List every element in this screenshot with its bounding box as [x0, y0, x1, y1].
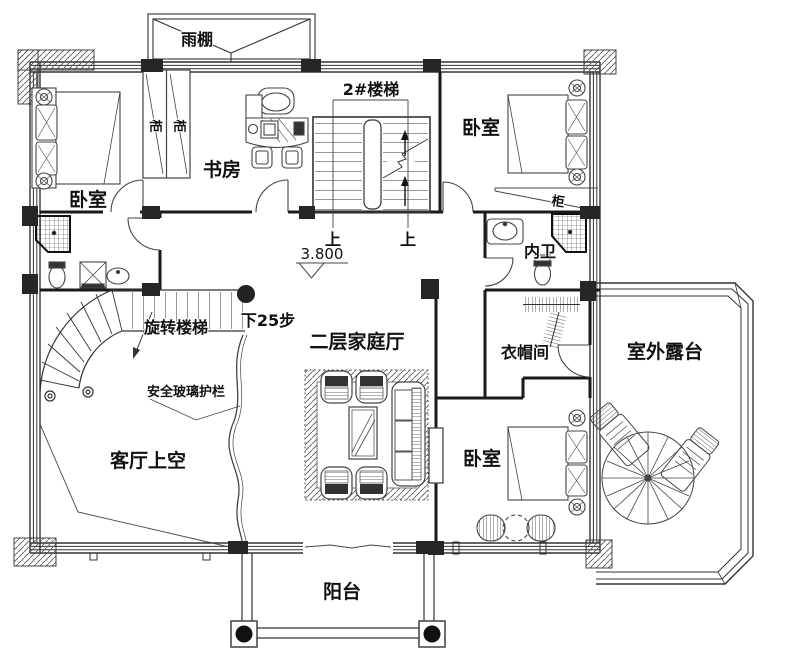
label-wardrobe-cell-2: 柜: [171, 118, 187, 132]
label-balcony: 阳台: [323, 580, 361, 603]
label-cabinet: 柜: [549, 193, 565, 211]
family-hall-sofa-set: [305, 370, 428, 500]
label-spiral-stair: 旋转楼梯: [143, 318, 208, 337]
void-and-glass-rail: [40, 335, 247, 549]
label-inner-bath: 内卫: [524, 242, 556, 261]
stair-2: [313, 100, 430, 228]
label-elevation: 3.800: [301, 245, 344, 263]
elevation-marker: [296, 263, 348, 278]
bedroom-top-right-furniture: [508, 80, 587, 185]
bedroom-bottom-right-furniture: [477, 410, 587, 541]
door-bedroom-top-left: [111, 180, 143, 212]
canopy: [148, 14, 315, 62]
door-cloakroom-terrace: [558, 345, 590, 377]
label-cloakroom: 衣帽间: [501, 343, 549, 362]
label-study: 书房: [203, 158, 241, 181]
label-down-25-steps: 下25步: [241, 311, 295, 330]
door-bath-left: [128, 218, 160, 250]
round-column: [236, 626, 253, 643]
label-terrace: 室外露台: [627, 340, 703, 363]
label-up-2: 上: [400, 230, 416, 249]
terrace-furniture: [588, 400, 722, 524]
label-canopy: 雨棚: [181, 30, 213, 49]
parasol: [602, 432, 694, 524]
door-inner-bath: [485, 258, 513, 286]
round-column: [424, 626, 441, 643]
label-bedroom-bottom-right: 卧室: [463, 447, 501, 470]
label-safety-glass-rail: 安全玻璃护栏: [147, 384, 225, 400]
floor-plan-drawing: 雨棚 卧室 柜 柜 书房 2#楼梯 卧室 柜 上 上 3.800 内卫 旋转楼梯…: [0, 0, 789, 665]
label-living-room-void: 客厅上空: [110, 449, 186, 472]
label-bedroom-top-right: 卧室: [462, 116, 500, 139]
door-study: [256, 180, 288, 212]
round-column: [237, 285, 255, 303]
label-wardrobe-cell-1: 柜: [147, 118, 163, 132]
door-bedroom-bottom-right: [429, 428, 443, 483]
label-stair-2: 2#楼梯: [343, 80, 400, 99]
left-bath-fixtures: [36, 216, 129, 288]
floor-plan-page: 雨棚 卧室 柜 柜 书房 2#楼梯 卧室 柜 上 上 3.800 内卫 旋转楼梯…: [0, 0, 789, 665]
balcony-door-opening: [303, 541, 393, 555]
spiral-stair: [40, 285, 255, 401]
label-bedroom-top-left: 卧室: [69, 188, 107, 211]
cloakroom-rails: [523, 297, 580, 349]
label-family-hall: 二层家庭厅: [309, 330, 404, 353]
bedroom-top-left-furniture: [32, 88, 120, 189]
study-furniture: [246, 88, 308, 168]
door-bedroom-top-right: [443, 182, 473, 212]
